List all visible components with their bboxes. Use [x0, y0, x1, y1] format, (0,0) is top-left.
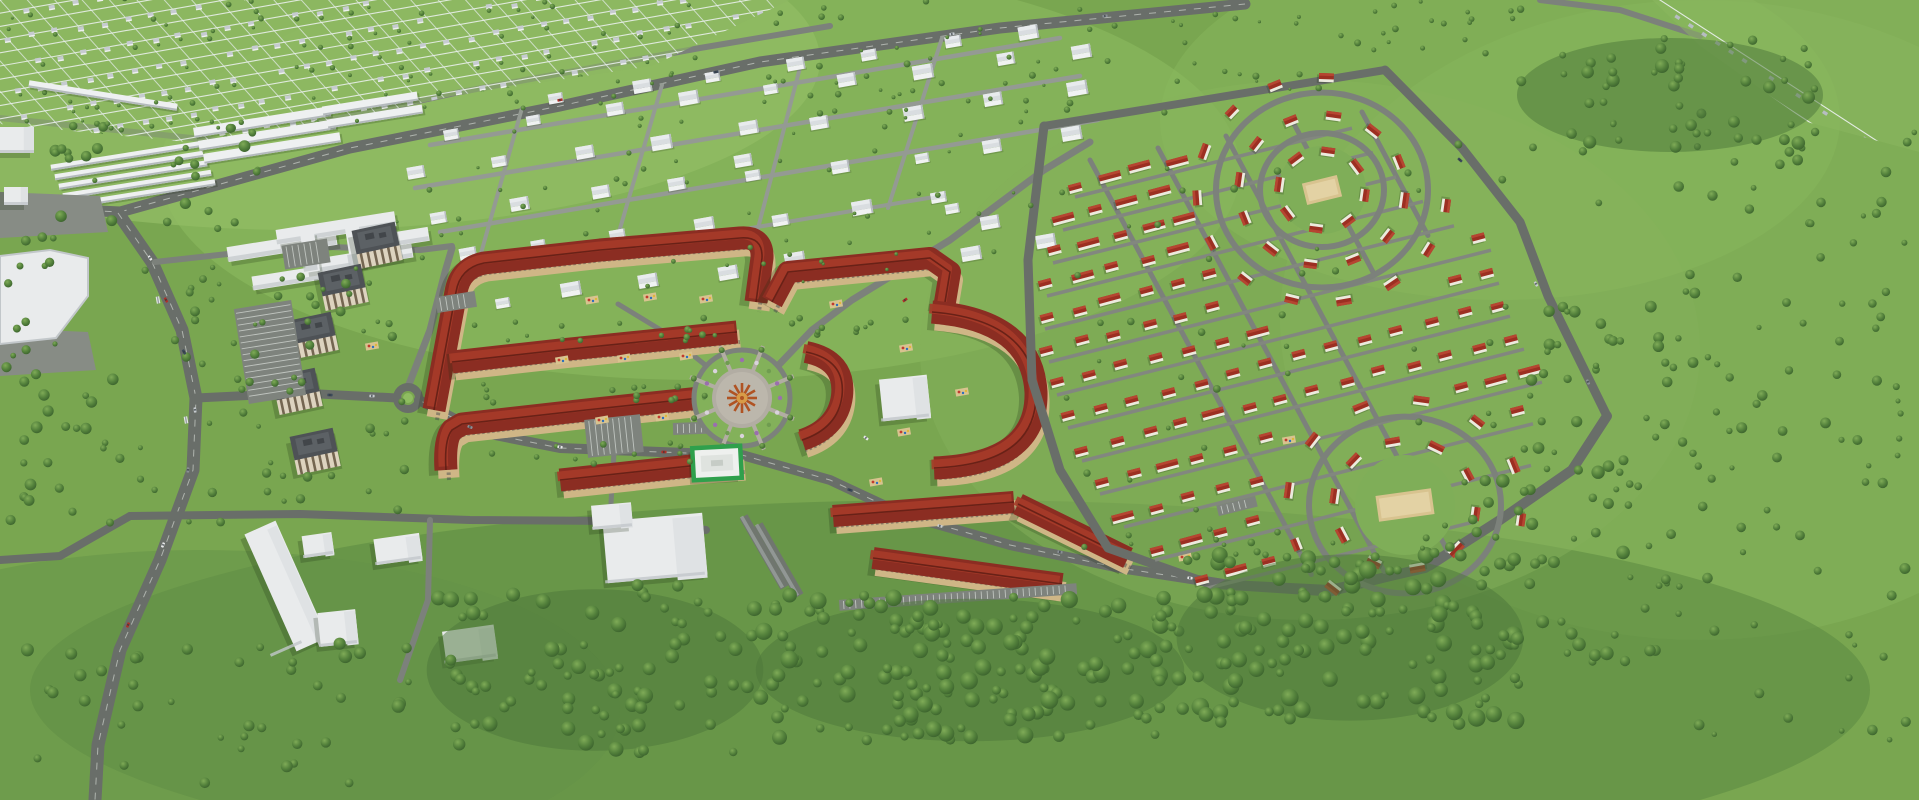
car	[661, 451, 666, 454]
parking-lot	[584, 414, 644, 458]
car	[1187, 576, 1192, 579]
store-building	[688, 446, 742, 485]
cottage	[1358, 187, 1370, 203]
cottage	[1317, 73, 1334, 83]
cottage	[1192, 190, 1203, 208]
masterplan-svg	[0, 0, 1919, 800]
car	[327, 394, 332, 397]
cottage	[1439, 196, 1451, 212]
cottage	[1303, 258, 1319, 270]
aerial-masterplan-render	[0, 0, 1919, 800]
car	[369, 395, 374, 398]
car	[193, 407, 196, 412]
cottage	[1309, 222, 1325, 234]
car	[186, 467, 189, 472]
retail-store	[688, 446, 742, 485]
